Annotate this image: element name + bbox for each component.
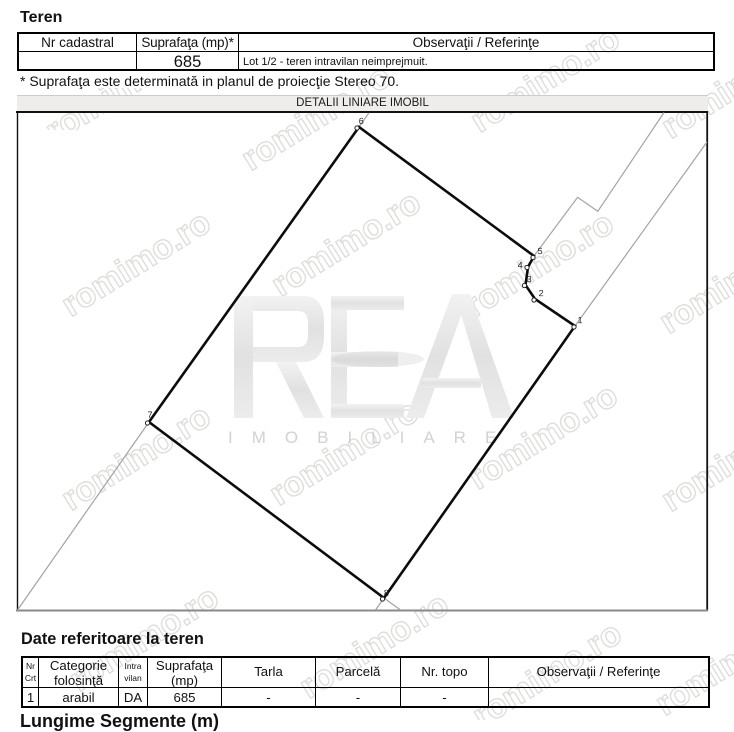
svg-text:romimo.ro: romimo.ro	[653, 220, 734, 341]
svg-text:romimo.ro: romimo.ro	[655, 398, 734, 519]
svg-text:romimo.ro: romimo.ro	[458, 204, 621, 325]
svg-text:romimo.ro: romimo.ro	[265, 183, 428, 304]
svg-text:3: 3	[527, 274, 532, 284]
svg-text:romimo.ro: romimo.ro	[55, 397, 218, 518]
svg-text:4: 4	[518, 260, 523, 270]
svg-text:1: 1	[578, 315, 583, 325]
svg-text:8: 8	[384, 588, 389, 598]
svg-text:2: 2	[539, 288, 544, 298]
svg-text:7: 7	[147, 410, 152, 420]
svg-text:6: 6	[359, 116, 364, 126]
svg-text:5: 5	[538, 246, 543, 256]
svg-text:romimo.ro: romimo.ro	[55, 203, 218, 324]
svg-text:IMOBILIARE: IMOBILIARE	[228, 428, 515, 447]
